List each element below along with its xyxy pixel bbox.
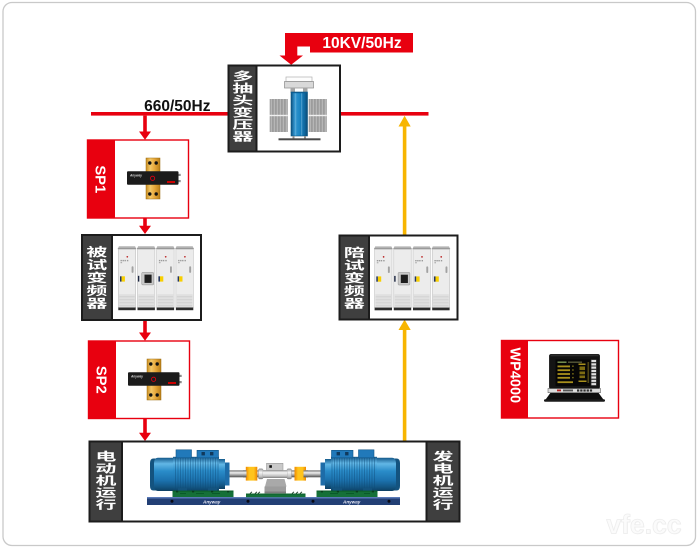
svg-text:WP4000: WP4000 — [506, 347, 522, 403]
svg-text:Anyway: Anyway — [342, 500, 361, 505]
svg-text:Anyway: Anyway — [202, 500, 221, 505]
svg-text:vfe.cc: vfe.cc — [606, 509, 681, 539]
svg-text:10KV/50Hz: 10KV/50Hz — [322, 35, 402, 52]
svg-text:SP1: SP1 — [91, 165, 107, 193]
svg-text:Anyway: Anyway — [129, 173, 142, 177]
svg-text:Anyway: Anyway — [130, 374, 143, 378]
svg-text:SP2: SP2 — [92, 366, 108, 394]
